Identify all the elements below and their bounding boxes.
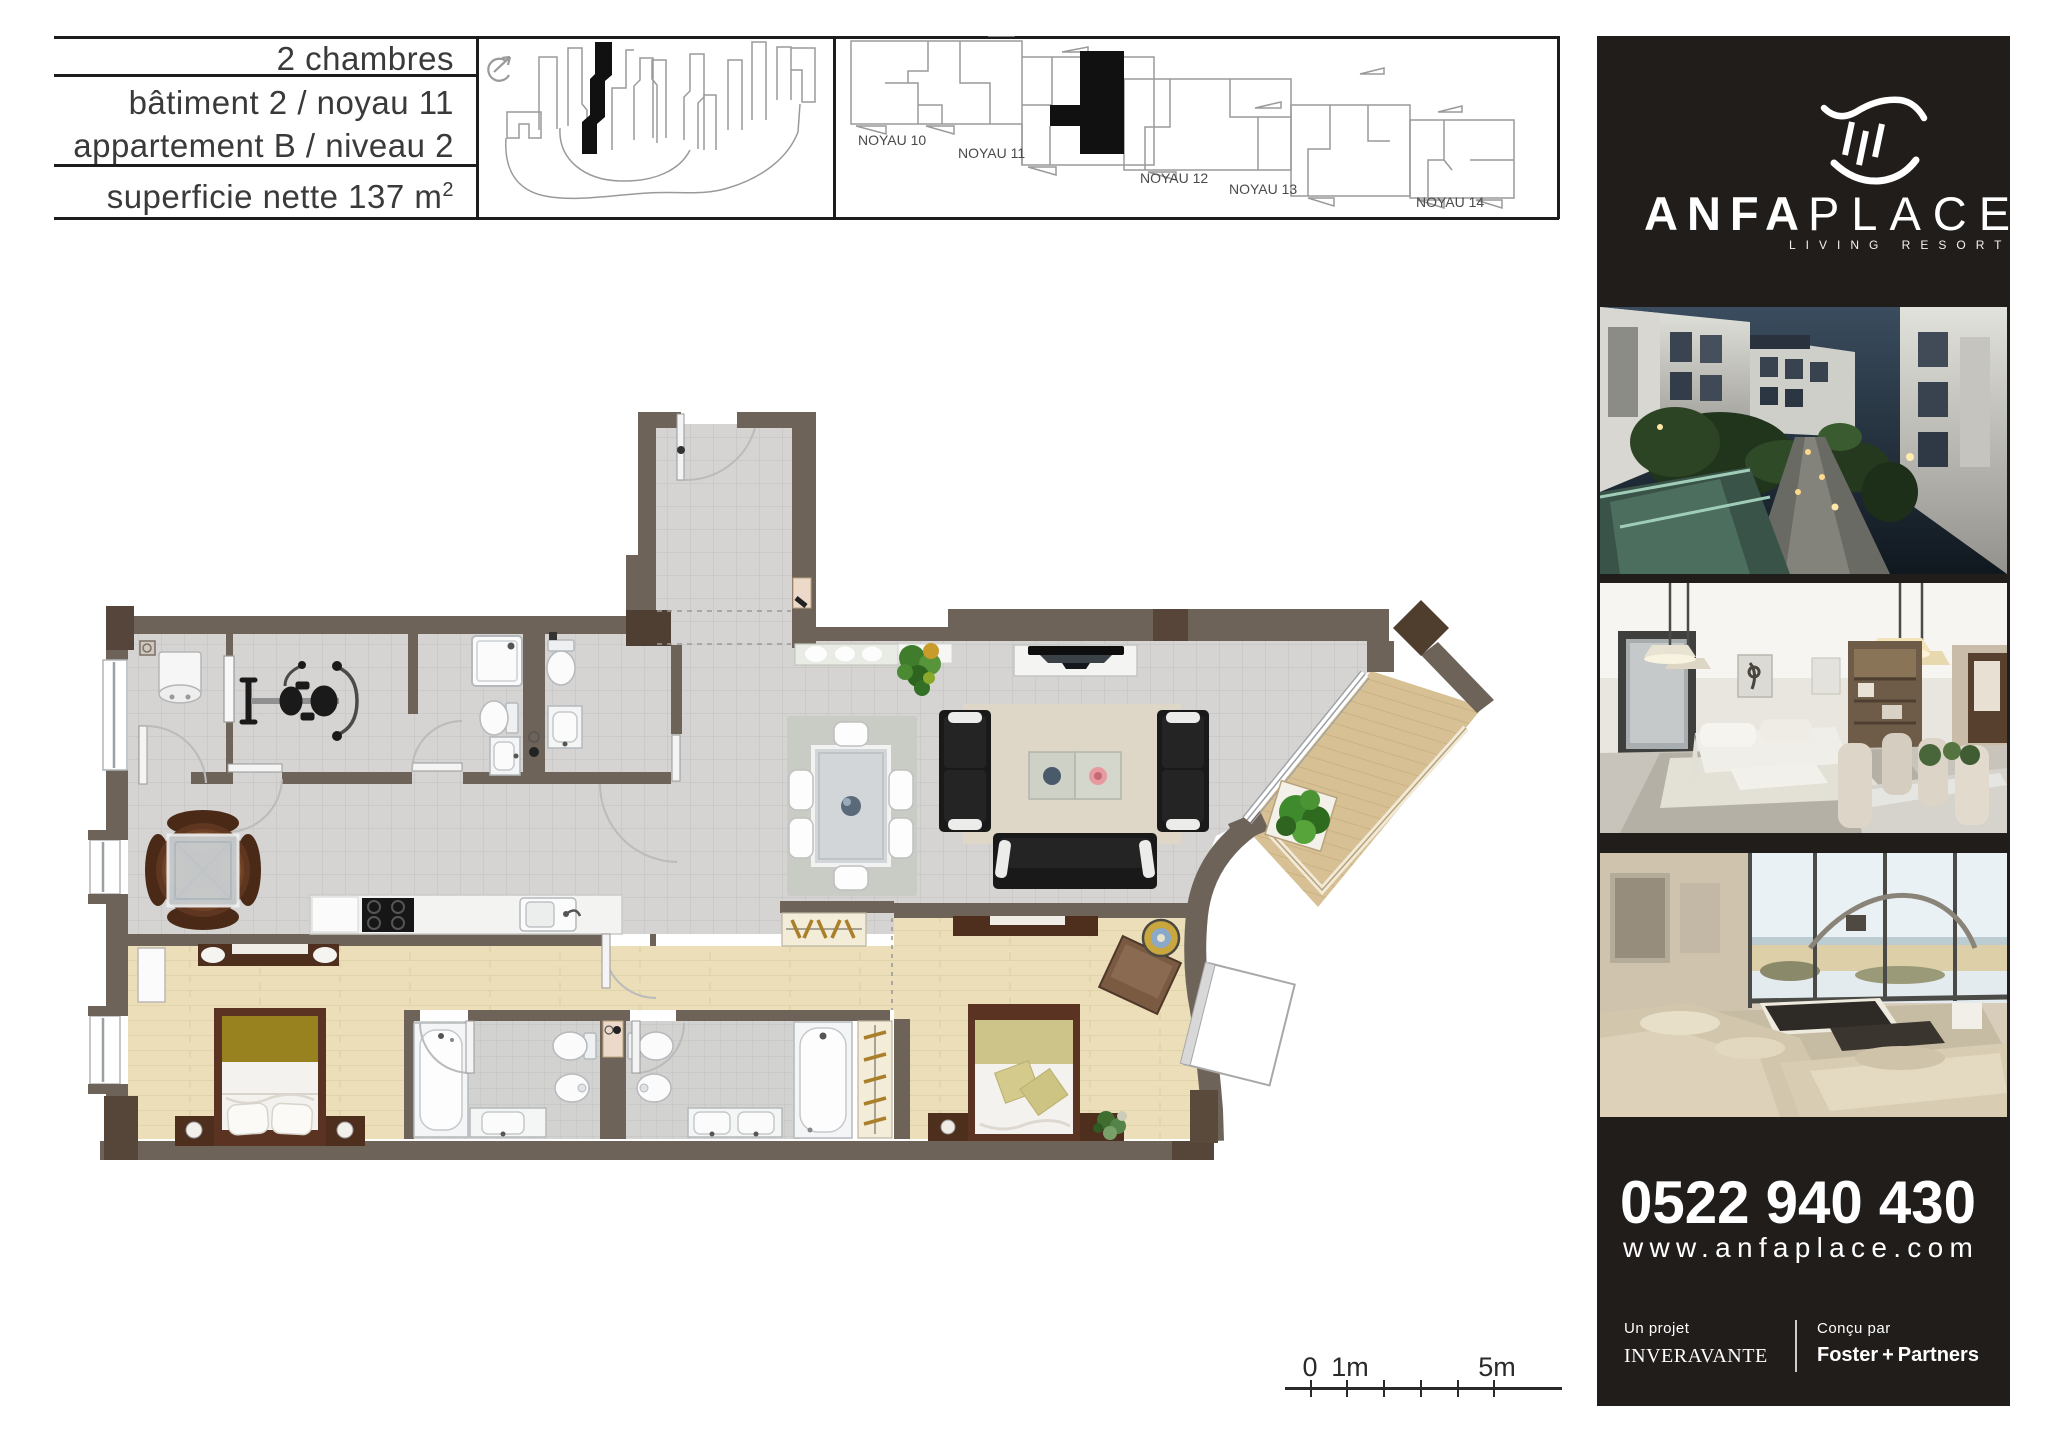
svg-text:NOYAU 10: NOYAU 10: [858, 132, 926, 148]
svg-text:NOYAU 11: NOYAU 11: [958, 145, 1025, 161]
svg-text:NOYAU 13: NOYAU 13: [1229, 181, 1297, 197]
svg-text:NOYAU 14: NOYAU 14: [1416, 194, 1484, 210]
svg-text:NOYAU 12: NOYAU 12: [1140, 170, 1208, 186]
